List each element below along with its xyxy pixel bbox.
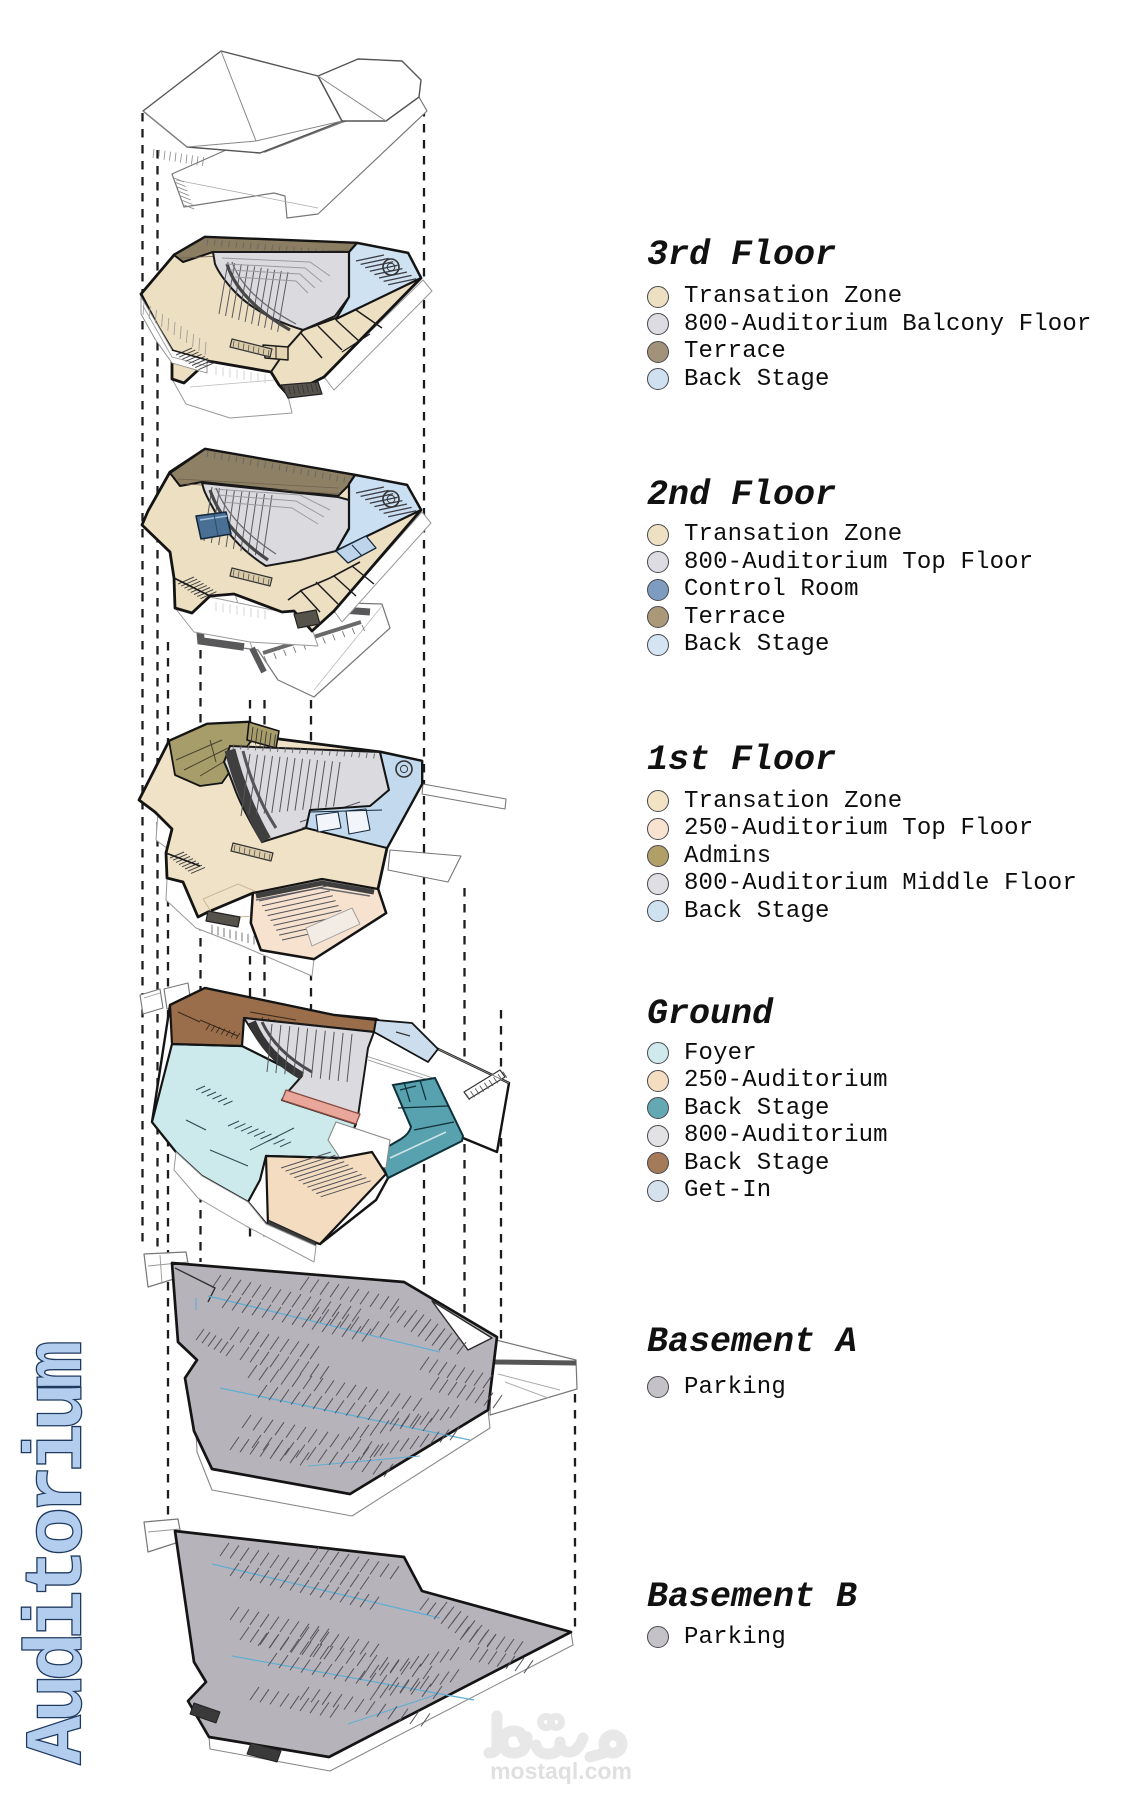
svg-text:Auditorium: Auditorium xyxy=(14,1343,105,1764)
svg-text:mostaql.com: mostaql.com xyxy=(490,1758,632,1784)
